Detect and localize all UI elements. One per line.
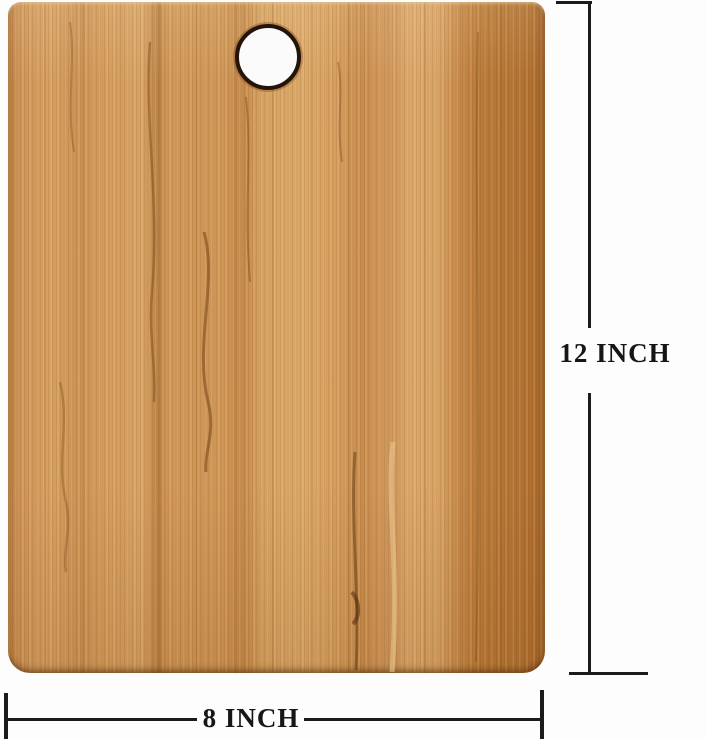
wood-grain-texture [8, 2, 545, 673]
width-dimension-left-tick [4, 693, 8, 739]
height-dimension-top-tick [556, 1, 592, 4]
width-dimension-line-right [304, 718, 543, 721]
product-image: 12 INCH 8 INCH [0, 0, 706, 739]
height-dimension-label: 12 INCH [557, 338, 673, 369]
height-dimension-bottom-tick [569, 672, 648, 675]
width-dimension-right-tick [540, 690, 544, 739]
height-dimension-line-upper [588, 2, 591, 328]
hanging-hole [235, 24, 301, 90]
height-dimension-line-lower [588, 393, 591, 675]
width-dimension-label: 8 INCH [195, 703, 307, 734]
width-dimension-line-left [5, 718, 197, 721]
cutting-board [8, 2, 545, 673]
